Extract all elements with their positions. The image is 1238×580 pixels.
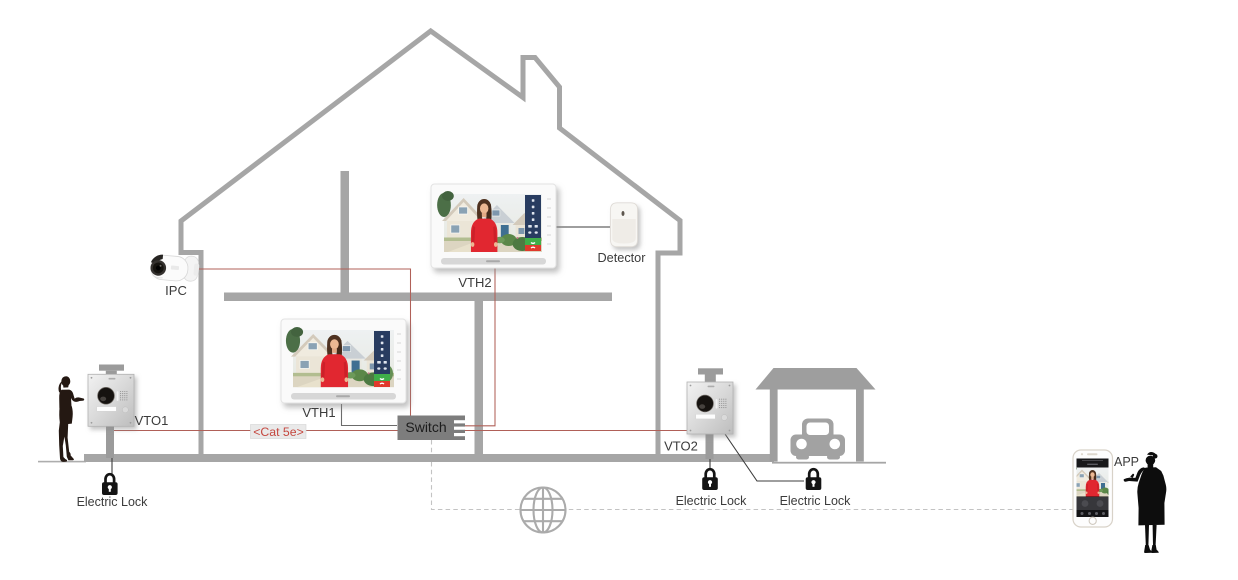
svg-text:VTH1: VTH1 — [302, 405, 335, 420]
svg-text:VTH2: VTH2 — [458, 275, 491, 290]
svg-text:IPC: IPC — [165, 283, 187, 298]
svg-text:Switch: Switch — [405, 419, 446, 435]
svg-text:APP: APP — [1114, 455, 1139, 469]
svg-text:VTO2: VTO2 — [664, 439, 698, 454]
svg-text:<Cat 5e>: <Cat 5e> — [253, 425, 304, 439]
svg-text:Electric Lock: Electric Lock — [780, 494, 852, 508]
svg-text:Electric Lock: Electric Lock — [676, 494, 748, 508]
svg-text:Electric Lock: Electric Lock — [77, 495, 149, 509]
svg-text:Detector: Detector — [598, 251, 647, 265]
svg-text:VTO1: VTO1 — [135, 413, 169, 428]
